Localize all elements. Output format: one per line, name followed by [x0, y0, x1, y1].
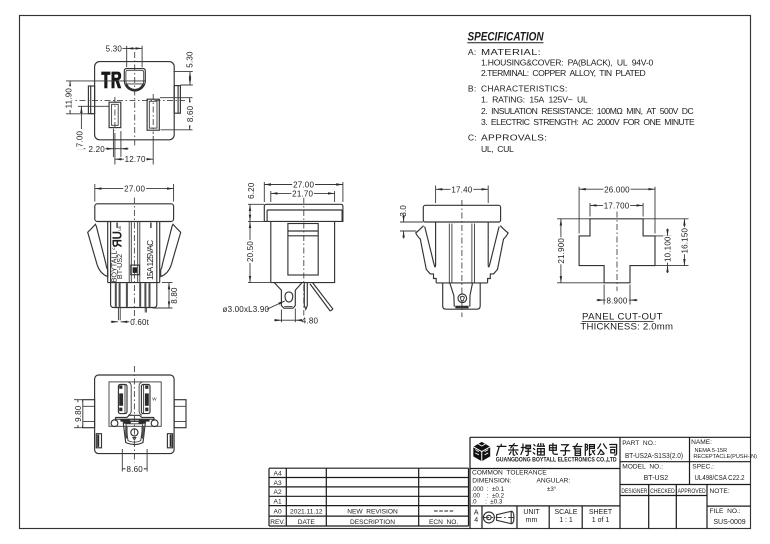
svg-text:12.70: 12.70: [125, 155, 146, 164]
svg-text:11.90: 11.90: [65, 88, 74, 109]
svg-text:10.100: 10.100: [664, 236, 673, 262]
svg-text:CHARACTERISTICS:: CHARACTERISTICS:: [481, 84, 568, 94]
svg-text:A: A: [474, 509, 479, 516]
svg-text:6.20: 6.20: [247, 182, 256, 199]
svg-text:27.00: 27.00: [124, 185, 145, 194]
svg-text:BT-US2: BT-US2: [115, 254, 124, 279]
svg-text:B:: B:: [468, 84, 477, 94]
svg-text:SPECIFICATION: SPECIFICATION: [468, 31, 545, 43]
svg-text:CHECKED: CHECKED: [650, 488, 675, 495]
svg-text:16.150: 16.150: [681, 228, 690, 254]
svg-text:8.60: 8.60: [127, 465, 144, 474]
svg-text:BT-US2: BT-US2: [644, 475, 669, 482]
svg-text:SPEC.:: SPEC.:: [692, 464, 714, 471]
svg-text:RECEPTACLE(PUSH-IN): RECEPTACLE(PUSH-IN): [693, 454, 757, 460]
svg-text:W: W: [152, 397, 157, 402]
svg-text:NOTE:: NOTE:: [710, 488, 730, 495]
svg-text:0.60t: 0.60t: [130, 318, 149, 327]
svg-text:A1: A1: [274, 499, 282, 506]
svg-text:NAME:: NAME:: [691, 439, 712, 446]
svg-text:REV.: REV.: [270, 519, 285, 526]
svg-text:4: 4: [474, 517, 478, 524]
svg-text:UNIT: UNIT: [523, 509, 540, 516]
svg-text:17.40: 17.40: [451, 185, 472, 194]
svg-text:mm: mm: [526, 517, 538, 524]
svg-text:2.TERMINAL: COPPER ALLOY, T: 2.TERMINAL: COPPER ALLOY, TIN PLATED: [481, 68, 646, 78]
svg-text:±3°: ±3°: [547, 486, 557, 493]
svg-text:DATE: DATE: [298, 519, 316, 526]
svg-text:9.80: 9.80: [74, 405, 83, 422]
svg-text:A2: A2: [274, 489, 282, 496]
svg-text:MODEL NO.:: MODEL NO.:: [622, 464, 663, 471]
svg-text:2. INSULATION RESISTANCE: 1: 2. INSULATION RESISTANCE: 100MΩ MIN, AT …: [481, 106, 694, 116]
svg-text:THICKNESS: 2.0mm: THICKNESS: 2.0mm: [580, 321, 673, 332]
svg-text:UL498/CSA C22.2: UL498/CSA C22.2: [695, 475, 745, 482]
svg-text:27.00: 27.00: [293, 181, 314, 190]
svg-text:3.0: 3.0: [399, 205, 408, 217]
svg-text:5.30: 5.30: [186, 51, 195, 68]
svg-text:ANGULAR:: ANGULAR:: [537, 478, 571, 485]
svg-text:UL, CUL: UL, CUL: [481, 144, 514, 154]
svg-text:us: us: [117, 225, 122, 231]
svg-text:1. RATING: 15A 125V~ UL: 1. RATING: 15A 125V~ UL: [481, 95, 588, 105]
svg-text:1.HOUSING&COVER: PA(BLACK),: 1.HOUSING&COVER: PA(BLACK), UL 94V-0: [481, 58, 654, 68]
svg-text:.0 : ±0.3: .0 : ±0.3: [471, 499, 502, 506]
svg-text:8.60: 8.60: [186, 105, 195, 122]
svg-text:APPROVALS:: APPROVALS:: [481, 133, 547, 143]
svg-text:ø3.00xL3.90: ø3.00xL3.90: [223, 305, 270, 314]
svg-text:SUS-0009: SUS-0009: [713, 519, 745, 526]
svg-text:3. ELECTRIC STRENGTH: AC 2: 3. ELECTRIC STRENGTH: AC 2000V FOR ONE M…: [481, 117, 695, 127]
svg-text:DIMENSION:: DIMENSION:: [472, 478, 511, 485]
svg-text:BT-US2A-S1S3(2.0): BT-US2A-S1S3(2.0): [625, 453, 683, 460]
svg-text:2.20: 2.20: [89, 145, 106, 154]
svg-text:A3: A3: [274, 480, 282, 487]
svg-text:8.80: 8.80: [170, 287, 179, 304]
svg-text:A0: A0: [274, 509, 282, 516]
svg-text:PART NO.:: PART NO.:: [622, 440, 656, 447]
svg-text:2021.11.12: 2021.11.12: [290, 509, 323, 516]
svg-text:C:: C:: [468, 133, 477, 143]
svg-text:17.700: 17.700: [604, 202, 630, 211]
svg-text:DESCRIPTION: DESCRIPTION: [350, 519, 395, 526]
svg-text:ЯU: ЯU: [109, 231, 124, 247]
svg-text:21.900: 21.900: [557, 238, 566, 264]
svg-text:ECN NO.: ECN NO.: [429, 519, 458, 526]
svg-text:21.70: 21.70: [292, 190, 313, 199]
svg-text:20.50: 20.50: [246, 241, 255, 262]
svg-text:15A 125VAC: 15A 125VAC: [146, 240, 155, 280]
svg-text:COMMON TOLERANCE: COMMON TOLERANCE: [472, 469, 547, 476]
svg-text:1 of 1: 1 of 1: [592, 517, 610, 524]
svg-text:A:: A:: [468, 47, 477, 57]
svg-text:SCALE: SCALE: [555, 509, 578, 516]
svg-text:8.900: 8.900: [606, 297, 627, 306]
svg-text:1 : 1: 1 : 1: [559, 517, 573, 524]
svg-text:A4: A4: [274, 470, 282, 477]
svg-text:5.30: 5.30: [106, 44, 123, 53]
svg-text:APPROVED: APPROVED: [678, 488, 706, 495]
svg-text:DESIGNER: DESIGNER: [621, 488, 647, 495]
svg-text:FILE NO.:: FILE NO.:: [710, 508, 741, 515]
svg-text:26.000: 26.000: [604, 185, 630, 194]
svg-text:MATERIAL:: MATERIAL:: [481, 47, 541, 57]
svg-text:7.00: 7.00: [75, 130, 84, 147]
svg-text:NEW REVISION: NEW REVISION: [347, 509, 398, 516]
svg-text:4.80: 4.80: [302, 316, 319, 325]
svg-text:GUANGDONG BOYTALL ELECTRONICS: GUANGDONG BOYTALL ELECTRONICS CO.,LTD: [496, 457, 617, 464]
svg-text:SHEET: SHEET: [589, 509, 613, 516]
